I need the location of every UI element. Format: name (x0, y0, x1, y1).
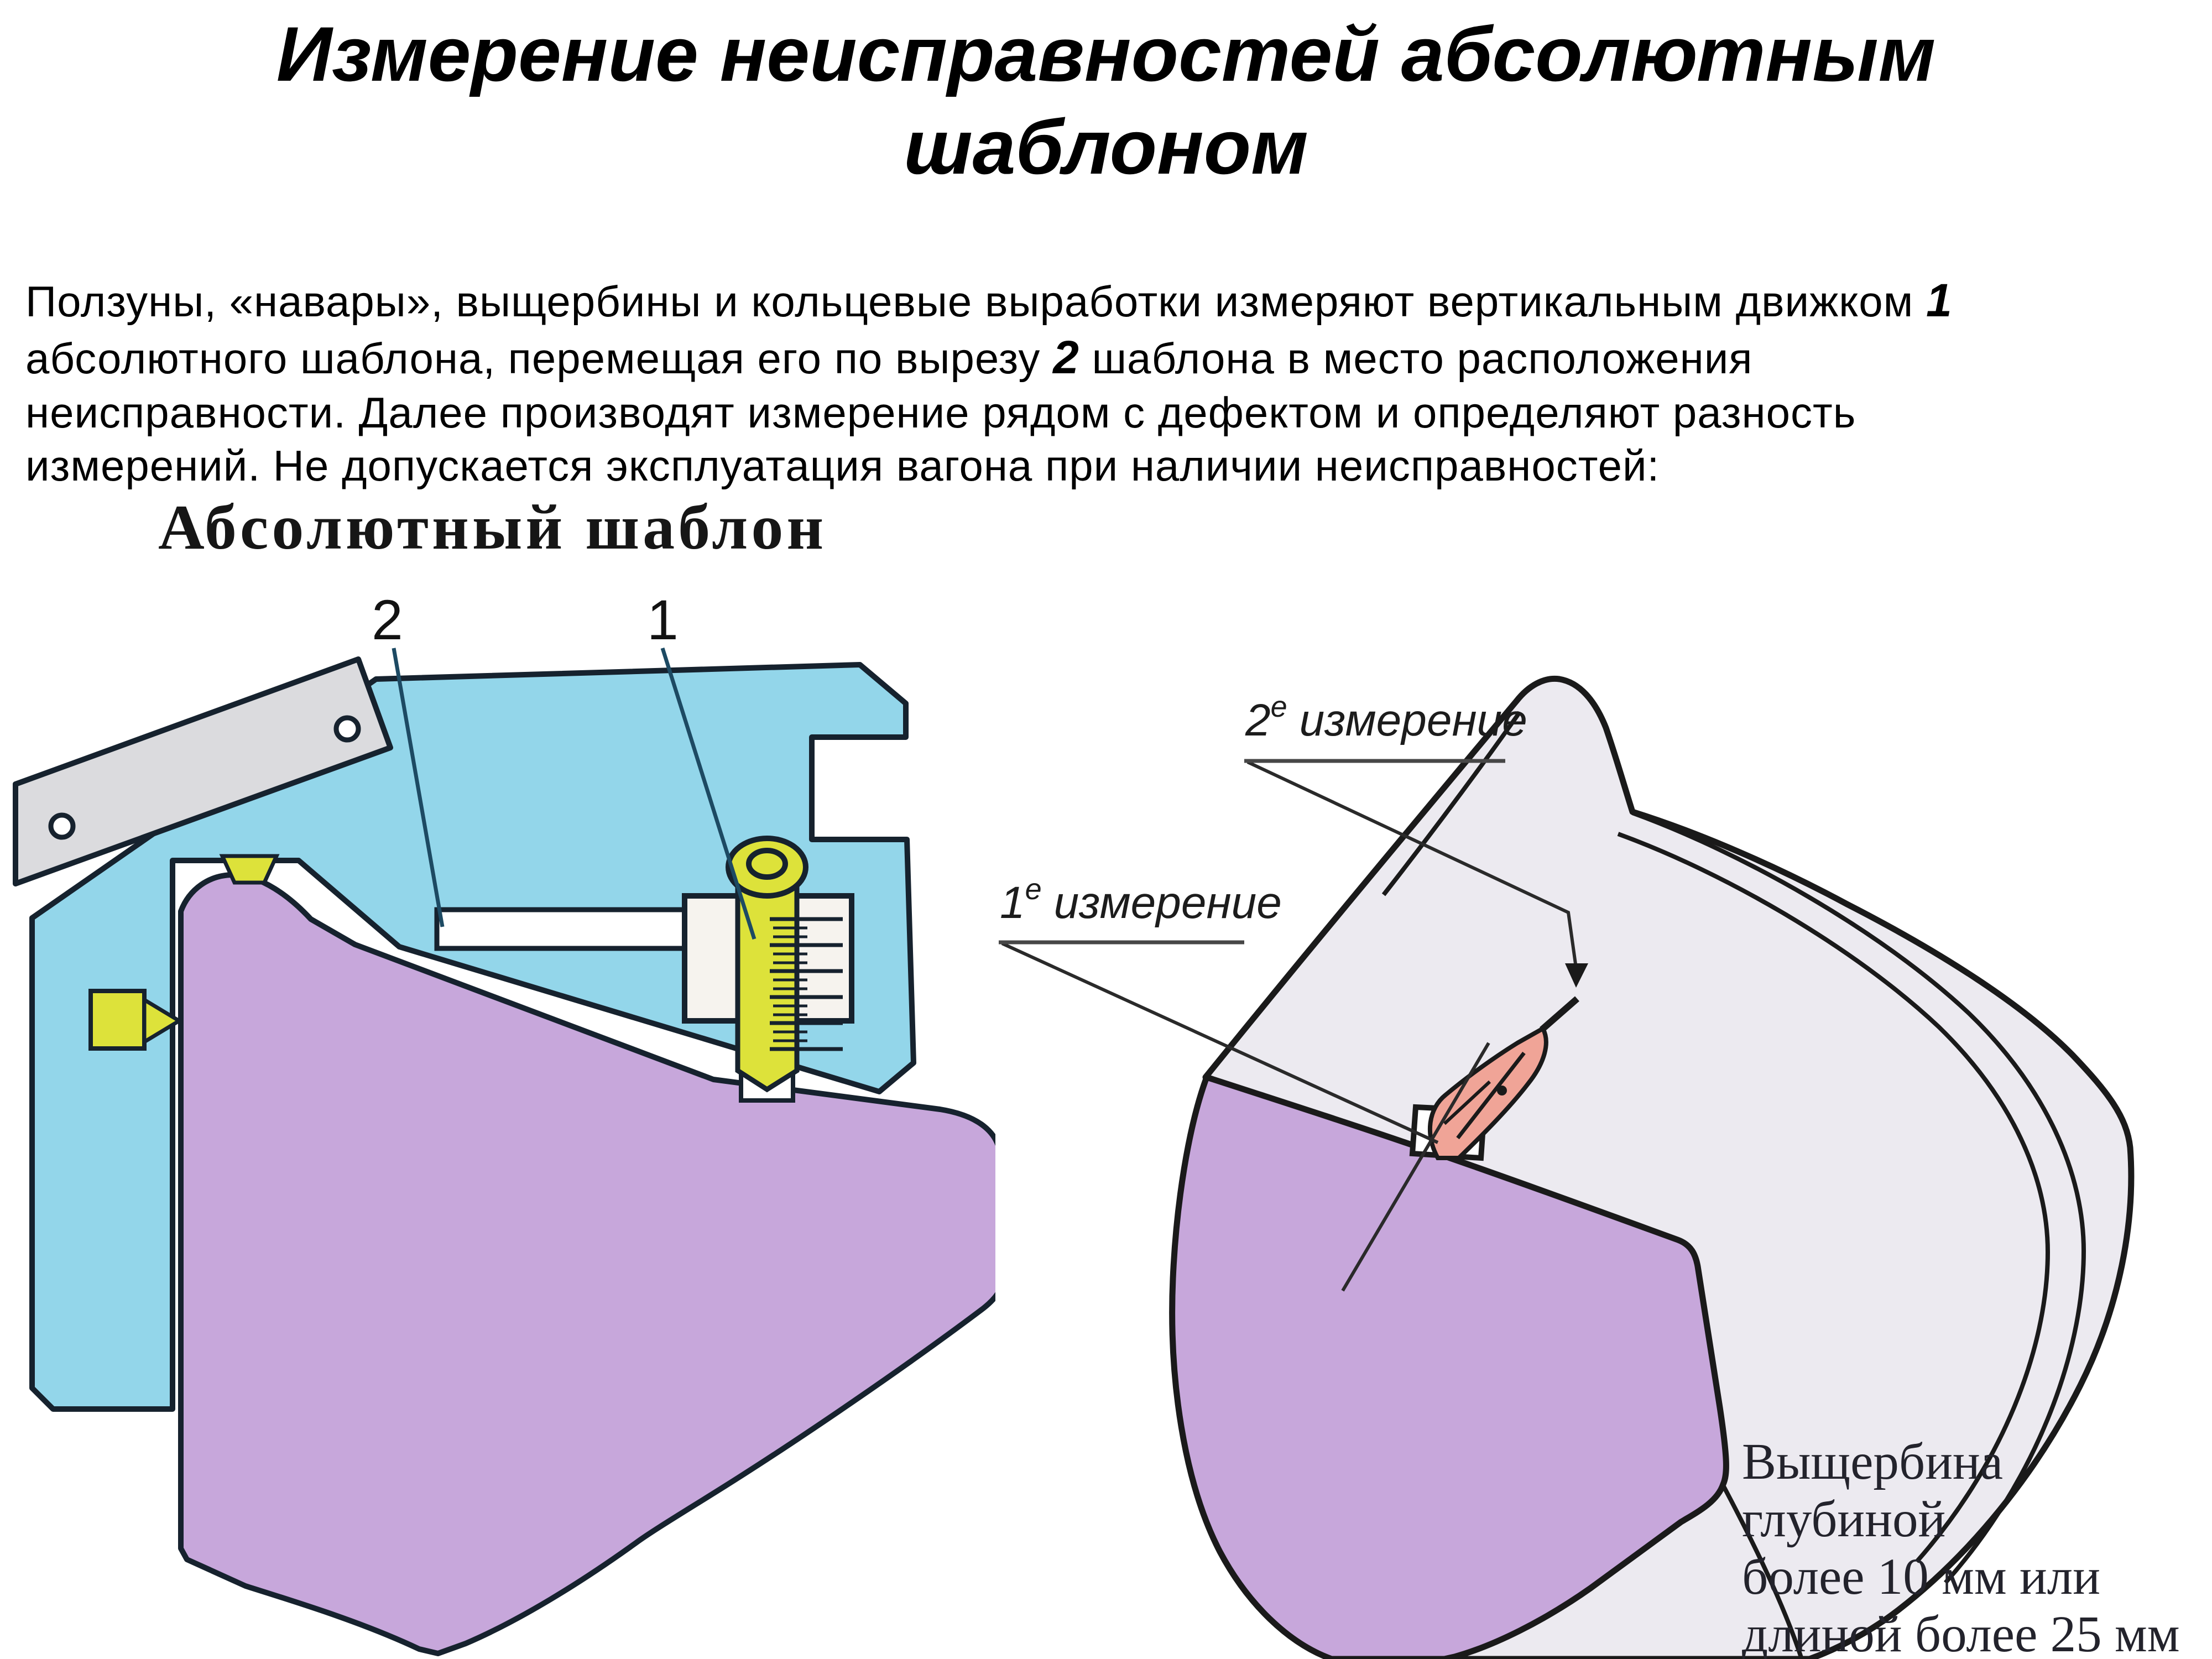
measurement-label-2-word: измерение (1300, 695, 1527, 745)
paragraph-text: абсолютного шаблона, перемещая его по вы… (25, 334, 1053, 383)
body-paragraph: Ползуны, «навары», выщербины и кольцевые… (25, 272, 2199, 493)
callout-2-label: 2 (372, 588, 403, 651)
measurement-label-1-sup: е (1025, 873, 1042, 906)
left-figure: 2 1 (11, 581, 995, 1659)
measurement-label-2-sup: е (1271, 690, 1287, 723)
plate-hole (51, 815, 73, 837)
measurement-label-1-num: 1 (1000, 878, 1025, 928)
slider-bar (738, 874, 797, 1089)
side-clamp (91, 991, 144, 1048)
measurement-label-1: 1еизмерение (1000, 873, 1282, 928)
slide: Измерение неисправностей абсолютным шабл… (0, 0, 2212, 1659)
paragraph-text: Ползуны, «навары», выщербины и кольцевые… (25, 277, 1926, 326)
defect-caption-line1: Выщербина глубиной (1742, 1433, 2206, 1548)
defect-caption: Выщербина глубиной более 10 мм или длино… (1742, 1433, 2206, 1659)
defect-caption-line3: длиной более 25 мм (1742, 1606, 2206, 1659)
ref-number-1: 1 (1926, 274, 1953, 326)
paragraph-line: измерений. Не допускается эксплуатация в… (25, 440, 2199, 493)
measurement-label-2-num: 2 (1245, 695, 1271, 745)
paragraph-text: шаблона в место расположения (1079, 334, 1753, 383)
paragraph-text: измерений. Не допускается эксплуатация в… (25, 441, 1660, 490)
left-figure-heading: Абсолютный шаблон (158, 491, 827, 565)
paragraph-text: неисправности. Далее производят измерени… (25, 388, 1856, 437)
ref-number-2: 2 (1053, 331, 1079, 383)
paragraph-line: неисправности. Далее производят измерени… (25, 387, 2199, 440)
defect-dot (1497, 1086, 1507, 1095)
callout-1-label: 1 (647, 588, 679, 651)
page-title: Измерение неисправностей абсолютным шабл… (0, 8, 2212, 194)
measurement-label-2: 2еизмерение (1245, 690, 1527, 745)
page-title-line1: Измерение неисправностей абсолютным (0, 8, 2212, 101)
measurement-label-1-word: измерение (1054, 878, 1282, 928)
defect-caption-line2: более 10 мм или (1742, 1548, 2206, 1606)
paragraph-line: абсолютного шаблона, перемещая его по вы… (25, 329, 2199, 386)
plate-hole (336, 718, 358, 740)
cutout-slot (437, 910, 687, 948)
page-title-line2: шаблоном (0, 101, 2212, 194)
paragraph-line: Ползуны, «навары», выщербины и кольцевые… (25, 272, 2199, 329)
